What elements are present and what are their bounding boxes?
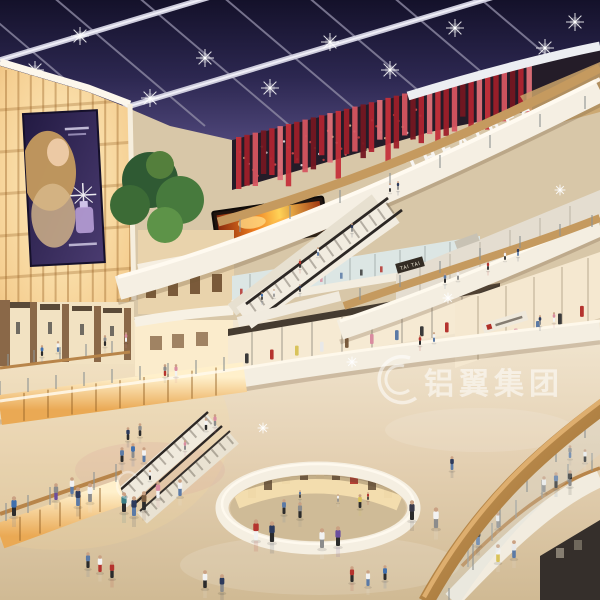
watermark-text: 铝翼集团 xyxy=(424,367,564,402)
scene-canvas: THEATRES xyxy=(0,0,600,600)
mall-atrium-rendering: THEATRES xyxy=(0,0,600,600)
atrium-void xyxy=(222,464,414,548)
perfume-bottle xyxy=(75,207,94,234)
billboard-perfume-ad xyxy=(19,110,105,266)
left-corridor-shops xyxy=(0,300,134,368)
